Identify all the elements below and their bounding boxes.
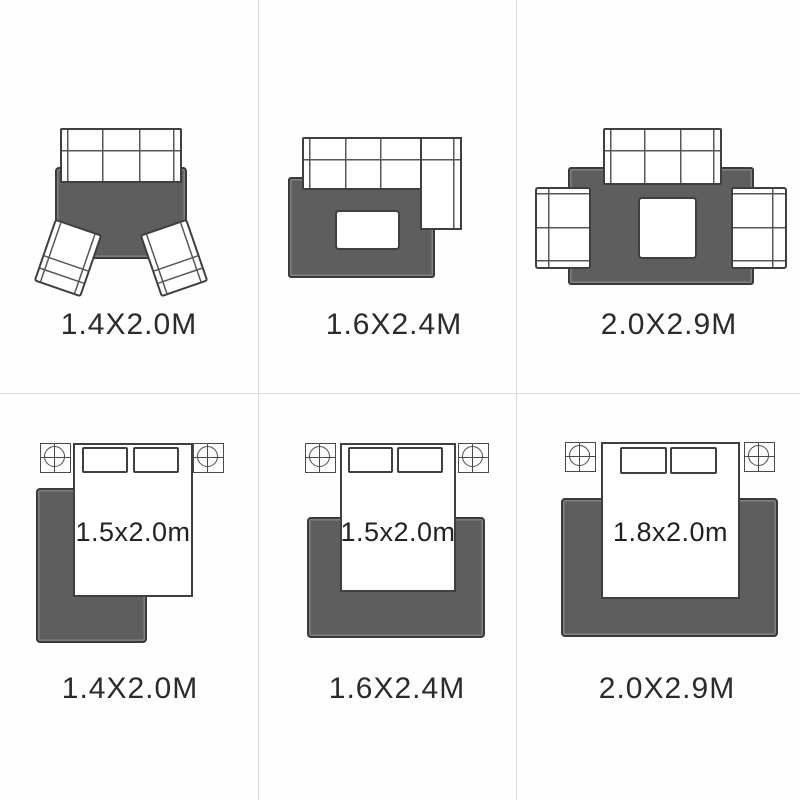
armchair-left (34, 219, 103, 298)
pillow-right (397, 447, 443, 473)
caption-bedroom-3: 2.0X2.9M (537, 674, 797, 704)
nightstand-left (40, 443, 71, 473)
nightstand-lamp-icon (44, 446, 65, 467)
caption-living-3: 2.0X2.9M (540, 310, 798, 340)
pillow-right (133, 447, 179, 473)
nightstand-lamp-icon (462, 446, 483, 467)
nightstand-lamp-icon (197, 446, 218, 467)
caption-bedroom-2: 1.6X2.4M (267, 674, 527, 704)
loveseat-left (535, 187, 591, 269)
nightstand-left (565, 442, 596, 472)
rug-size-guide-image: 1.4X2.0M 1.6X2.4M 2.0X2.9M 1.5x2.0m 1.4X… (0, 0, 800, 800)
loveseat-right (731, 187, 787, 269)
nightstand-right (744, 442, 775, 472)
pillow-left (348, 447, 393, 473)
bed-size-label-2: 1.5x2.0m (340, 519, 456, 546)
caption-living-1: 1.4X2.0M (0, 310, 258, 340)
sofa-three-seat (60, 128, 182, 183)
pillow-right (670, 447, 717, 474)
sofa-three-seat-center (603, 128, 722, 185)
nightstand-lamp-icon (569, 445, 590, 466)
nightstand-right (458, 443, 489, 473)
caption-bedroom-1: 1.4X2.0M (0, 674, 260, 704)
sectional-sofa-body (302, 137, 422, 190)
nightstand-left (305, 443, 336, 473)
nightstand-lamp-icon (748, 445, 769, 466)
coffee-table-square (638, 197, 697, 259)
bed-size-label-3: 1.8x2.0m (601, 519, 740, 546)
pillow-left (82, 447, 128, 473)
sectional-chaise (420, 137, 462, 230)
nightstand-lamp-icon (309, 446, 330, 467)
coffee-table-rect (335, 210, 400, 250)
caption-living-2: 1.6X2.4M (266, 310, 522, 340)
grid-divider-horizontal (0, 393, 800, 394)
bed-size-label-1: 1.5x2.0m (73, 519, 193, 546)
nightstand-right (193, 443, 224, 473)
armchair-right (140, 219, 209, 298)
pillow-left (620, 447, 667, 474)
